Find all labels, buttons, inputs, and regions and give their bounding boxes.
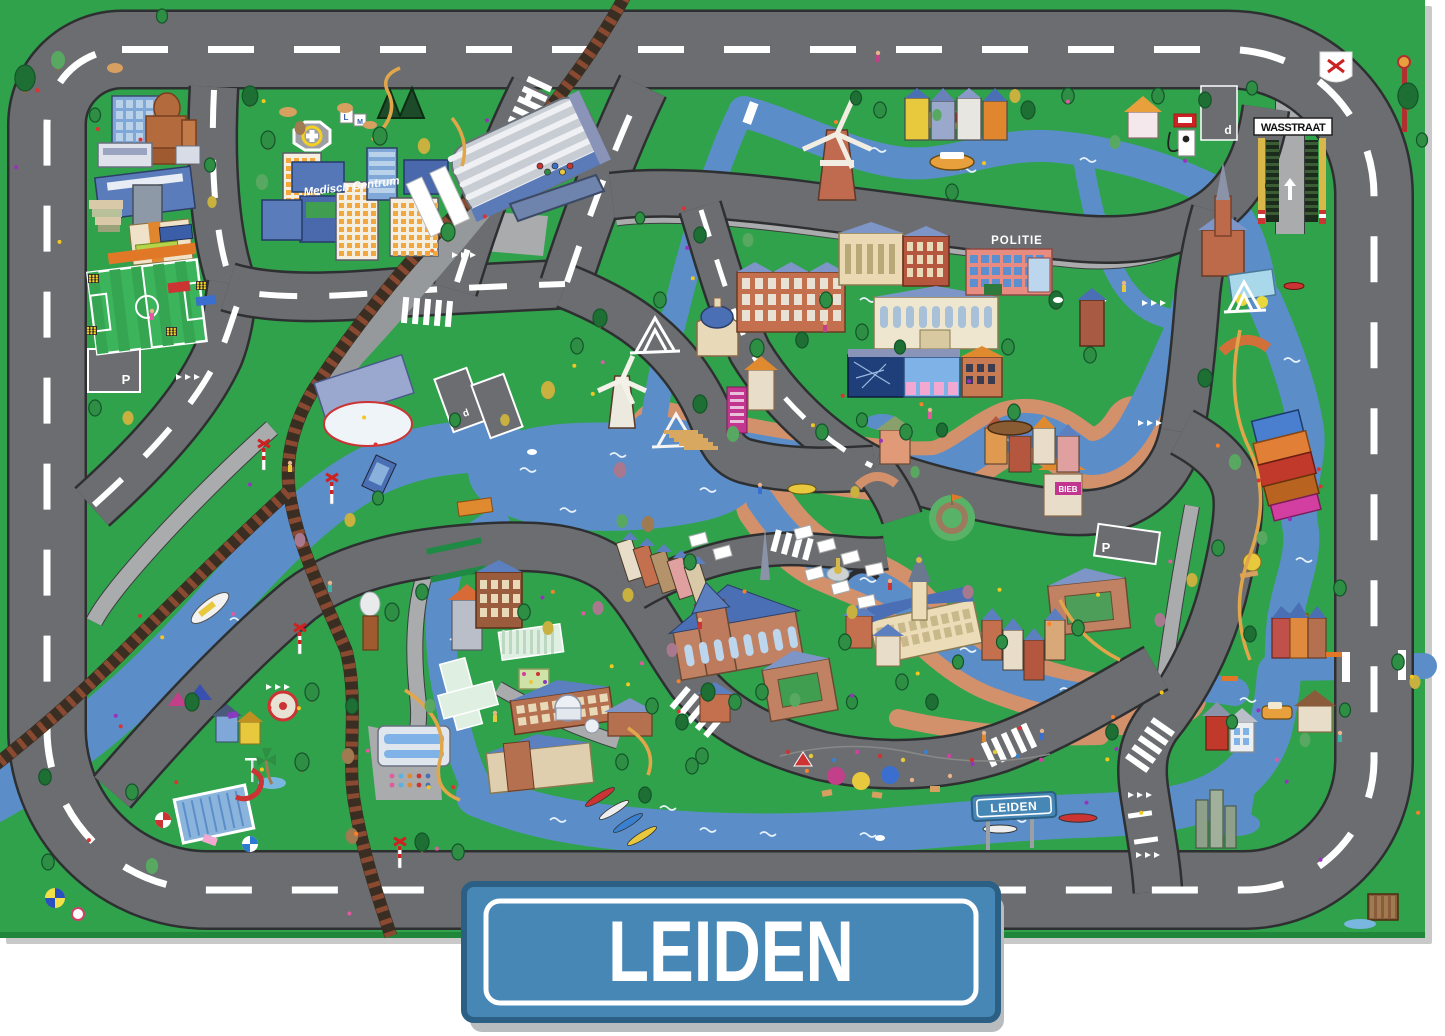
svg-text:d: d: [1224, 123, 1231, 137]
svg-text:LEIDEN: LEIDEN: [990, 799, 1038, 815]
svg-text:WASSTRAAT: WASSTRAAT: [1261, 122, 1326, 134]
svg-text:LEIDEN: LEIDEN: [608, 904, 854, 1000]
svg-text:BIEB: BIEB: [1058, 485, 1077, 494]
svg-text:P: P: [122, 372, 131, 387]
svg-text:POLITIE: POLITIE: [991, 235, 1043, 247]
svg-text:M: M: [357, 119, 363, 126]
svg-text:L: L: [344, 113, 349, 122]
svg-text:P: P: [1102, 540, 1111, 555]
